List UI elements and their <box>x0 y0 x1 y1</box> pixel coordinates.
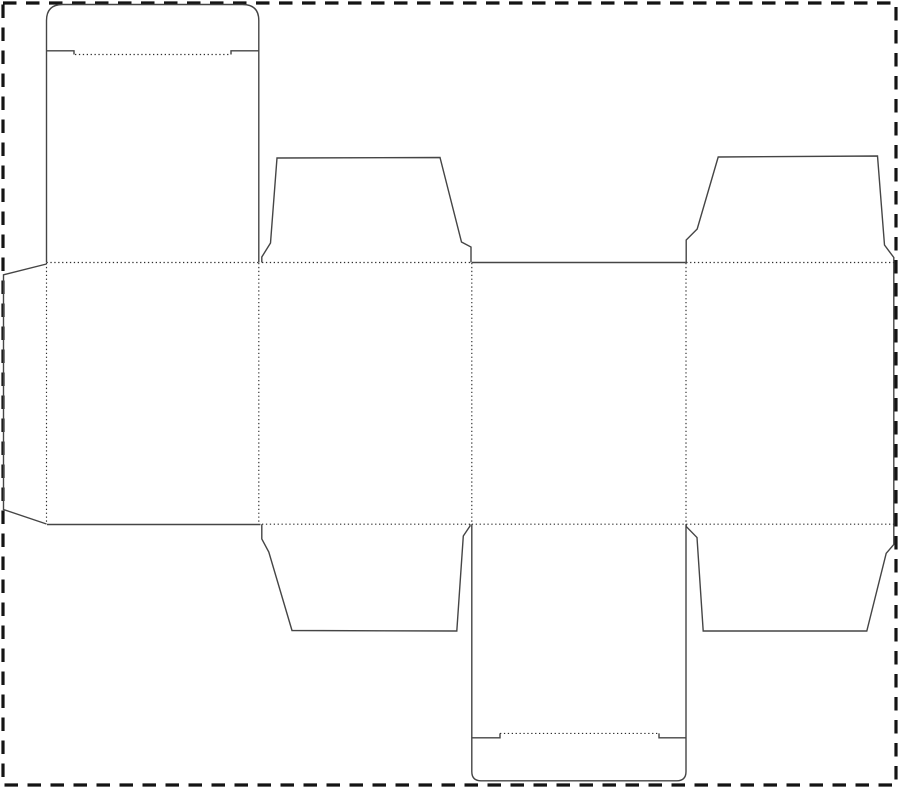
sheet-boundary-dashed-border <box>3 3 896 785</box>
bottom-tuck-shoulder-right-cut <box>659 733 686 737</box>
top-dust-flap-left-outline <box>262 158 471 263</box>
bottom-tuck-panel-and-flap-outline <box>472 524 686 781</box>
top-tuck-shoulder-right-cut <box>231 51 259 55</box>
top-lid-and-tuck-flap-outline <box>47 5 259 263</box>
dieline-sheet <box>0 0 900 788</box>
glue-flap-outline <box>4 264 47 524</box>
bottom-tuck-shoulder-left-cut <box>472 733 500 737</box>
box-dieline-drawing <box>0 0 900 788</box>
top-dust-flap-right-and-panel-4-side-outline <box>686 156 894 631</box>
bottom-dust-flap-left-outline <box>262 524 470 631</box>
top-tuck-shoulder-left-cut <box>47 51 75 55</box>
